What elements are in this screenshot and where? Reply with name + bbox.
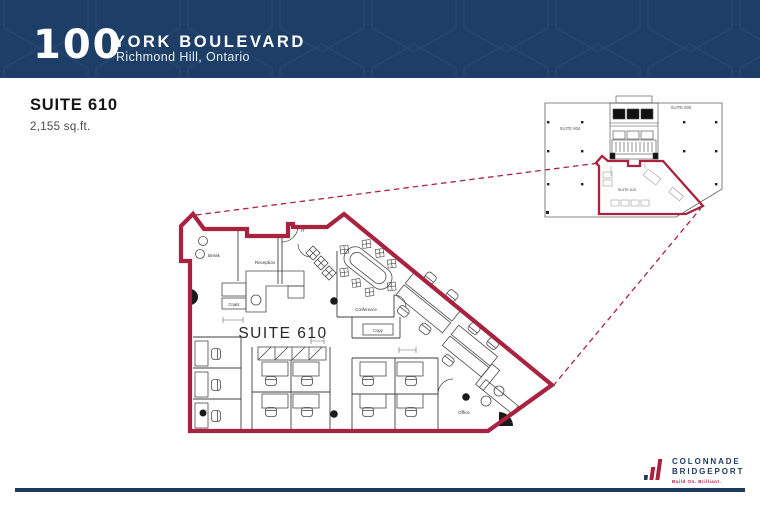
company-logo: COLONNADE BRIDGEPORT Build On. Brilliant…: [644, 452, 749, 486]
building-location: Richmond Hill, Ontario: [116, 50, 250, 64]
logo-name-line1: COLONNADE: [672, 457, 744, 467]
room-label-break: Break: [208, 253, 221, 258]
key-label-suite-604: SUITE 604: [560, 126, 581, 131]
key-plan: SUITE 604 SUITE 600 SUITE 610: [545, 96, 722, 217]
angled-desks-2: [435, 316, 505, 386]
room-label-reception: Reception: [255, 260, 276, 265]
room-label-it: IT: [301, 228, 305, 233]
columns: [190, 289, 513, 426]
footer-rule: [15, 488, 745, 492]
room-label-office: Office: [458, 410, 470, 415]
projection-lines: [196, 163, 701, 386]
suite-plan-label: SUITE 610: [238, 325, 327, 342]
key-label-suite-600: SUITE 600: [671, 105, 692, 110]
page-title: SUITE 610: [30, 96, 118, 115]
it-racks: [306, 246, 336, 280]
key-label-suite-610: SUITE 610: [618, 188, 637, 192]
logo-tagline: Build On. Brilliant.: [672, 479, 744, 484]
room-label-copy: Copy: [373, 328, 384, 333]
header-banner: 100 YORK BOULEVARD Richmond Hill, Ontari…: [0, 0, 760, 78]
flyer-page: SUITE 610 Break Reception Coats IT Confe…: [0, 0, 760, 505]
room-label-conference: Conference: [355, 307, 377, 312]
room-label-coats: Coats: [229, 302, 240, 307]
logo-name-line2: BRIDGEPORT: [672, 467, 744, 477]
suite-area: 2,155 sq.ft.: [30, 121, 91, 133]
logo-bars-icon: [644, 454, 670, 482]
core: [610, 96, 658, 159]
main-floor-plan: SUITE 610 Break Reception Coats IT Confe…: [181, 214, 552, 431]
building-number: 100: [33, 22, 123, 68]
workstation-chairs: [212, 349, 417, 422]
